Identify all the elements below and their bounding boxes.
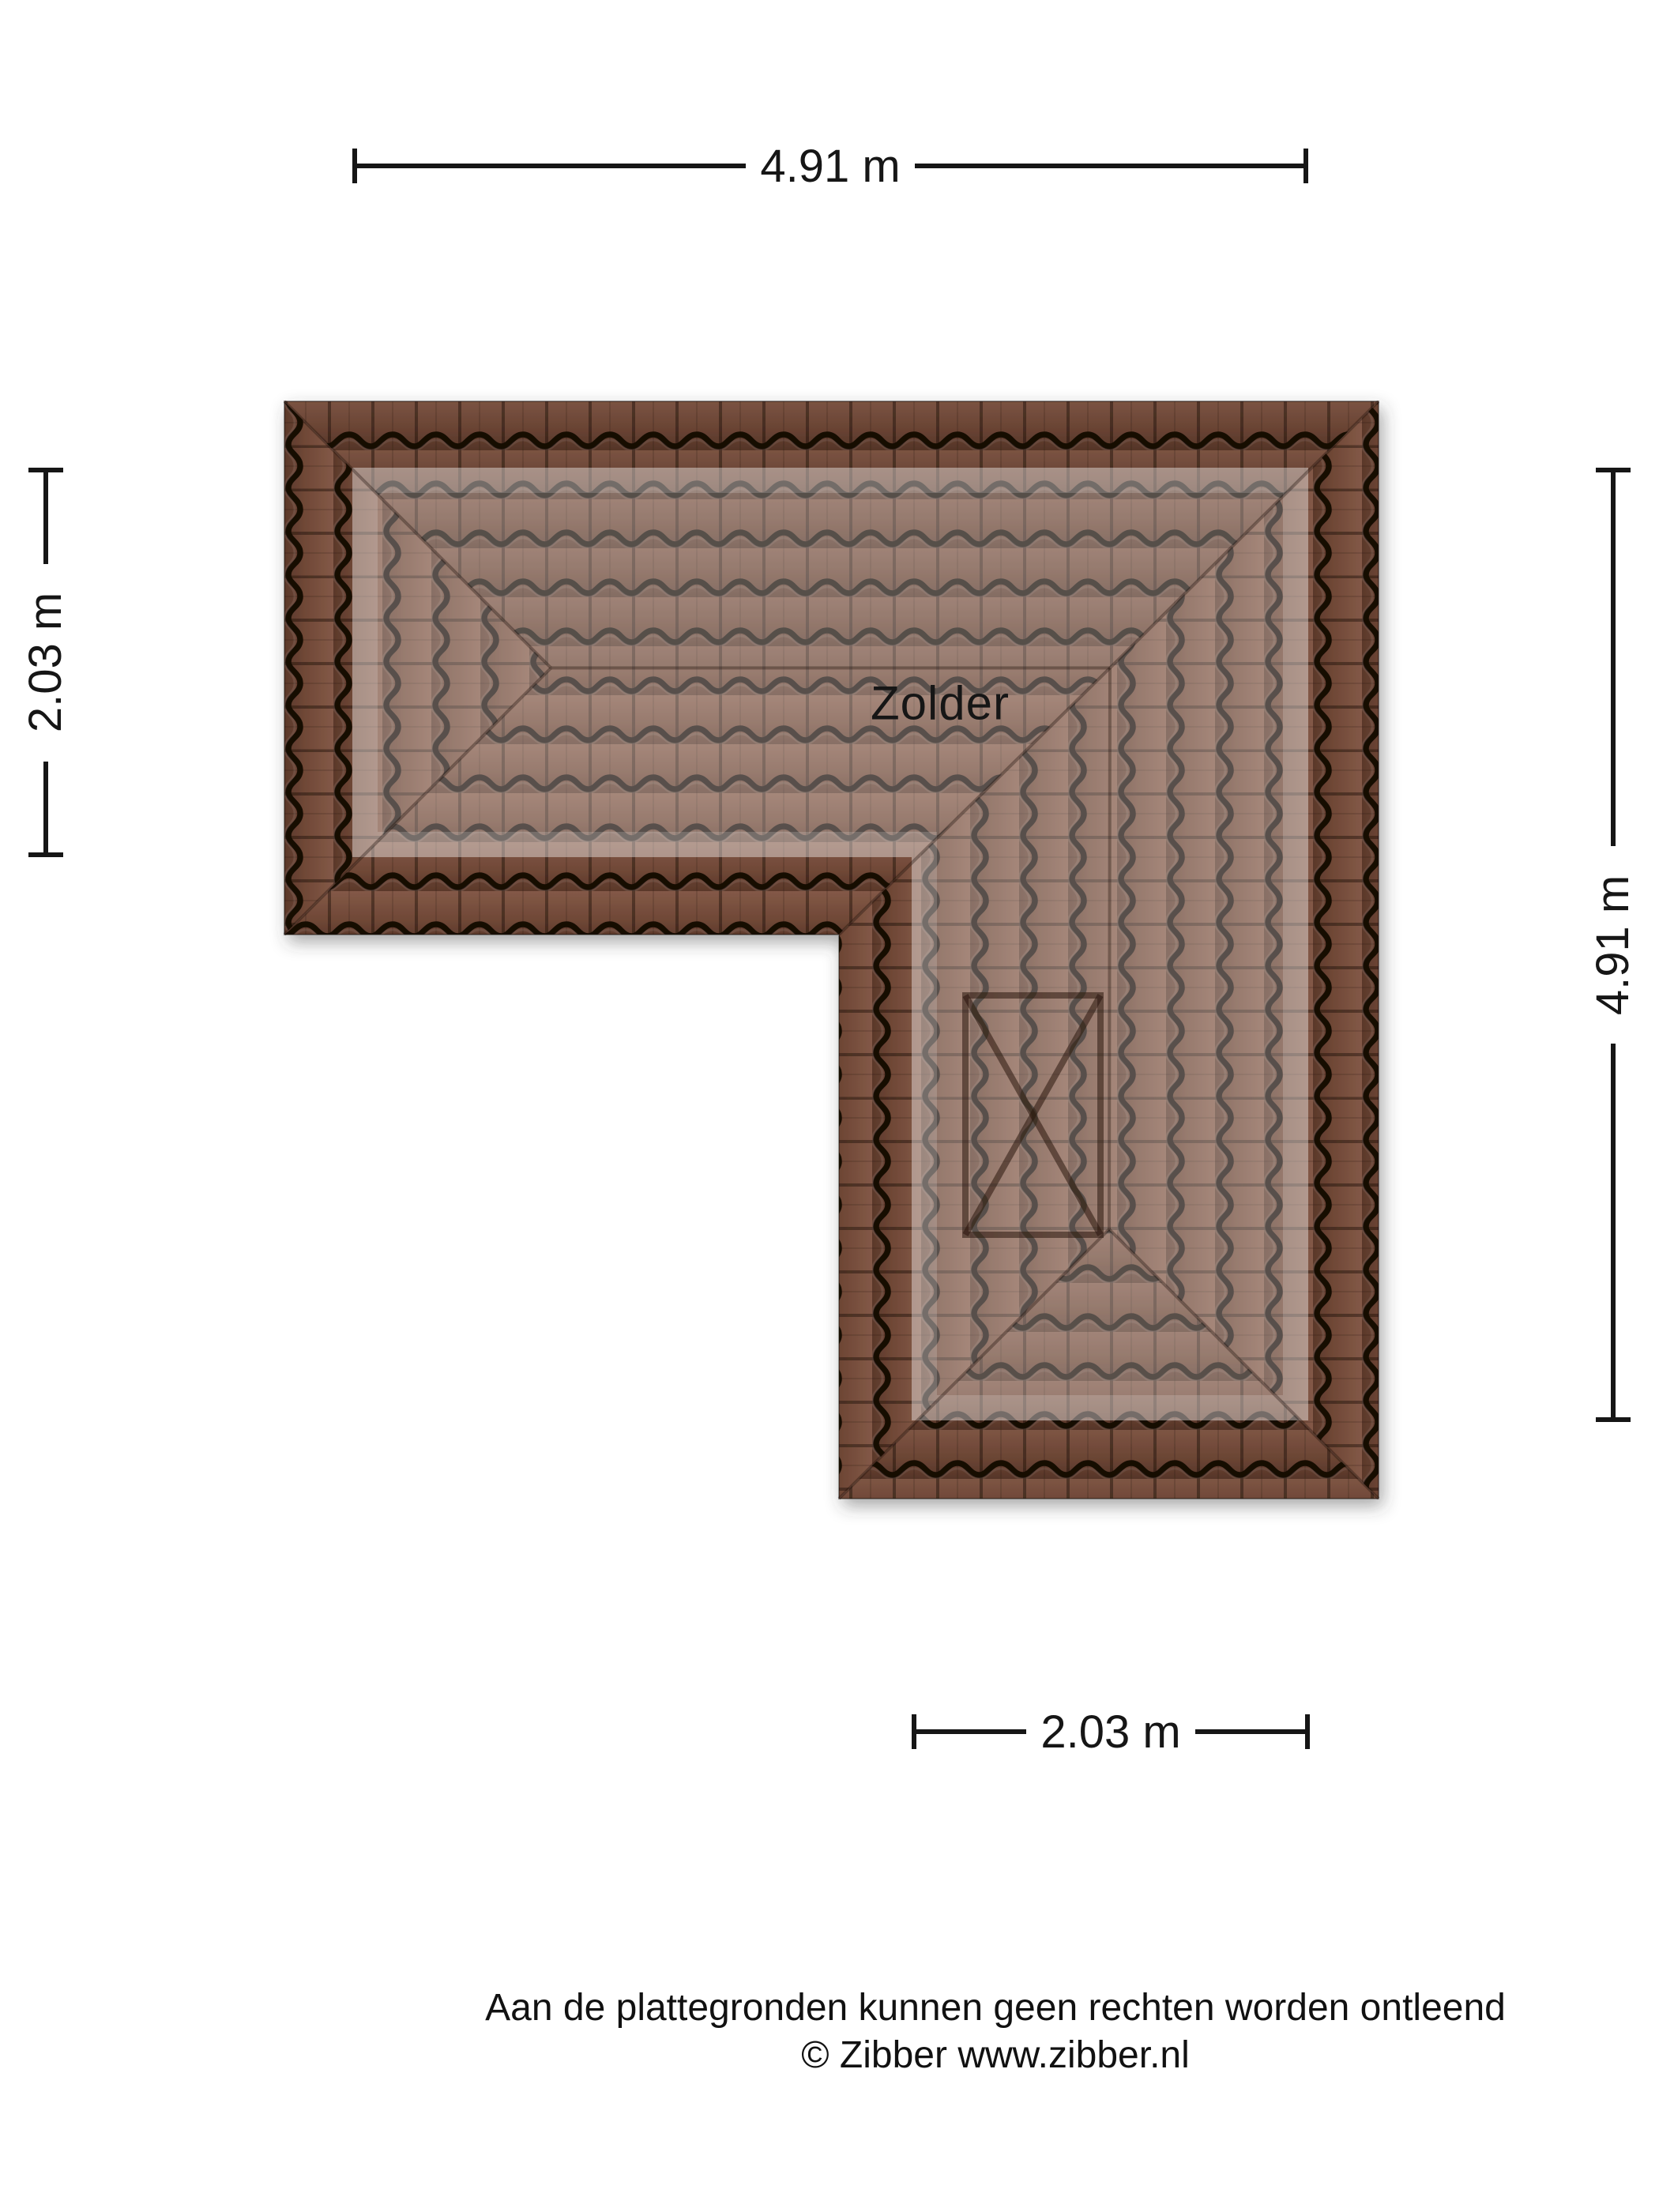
dimension-right: 4.91 m bbox=[1586, 468, 1641, 1422]
dimension-left: 2.03 m bbox=[18, 468, 73, 857]
roof-plan bbox=[284, 401, 1379, 1499]
dimension-top: 4.91 m bbox=[352, 138, 1308, 194]
dimension-label-bottom: 2.03 m bbox=[1026, 1706, 1194, 1759]
dimension-line bbox=[43, 468, 48, 564]
dimension-line bbox=[915, 164, 1308, 168]
dimension-label-left: 2.03 m bbox=[0, 564, 116, 762]
dimension-line bbox=[1195, 1729, 1310, 1734]
room-label: Zolder bbox=[871, 676, 1010, 731]
ridge-line bbox=[1109, 668, 1110, 1230]
disclaimer-line1: Aan de plattegronden kunnen geen rechten… bbox=[485, 1984, 1506, 2032]
dimension-line bbox=[43, 762, 48, 858]
dimension-line bbox=[1611, 468, 1616, 846]
dimension-label-top: 4.91 m bbox=[746, 140, 914, 193]
floorplan-page: 4.91 m 2.03 m 4.91 m 2.03 m bbox=[0, 0, 1659, 2212]
dimension-bottom: 2.03 m bbox=[912, 1704, 1310, 1759]
dimension-label-right: 4.91 m bbox=[1543, 846, 1659, 1044]
dimension-line bbox=[912, 1729, 1026, 1734]
roof-body bbox=[284, 401, 1379, 1499]
disclaimer: Aan de plattegronden kunnen geen rechten… bbox=[485, 1984, 1506, 2079]
roof-plan-svg bbox=[284, 401, 1379, 1499]
disclaimer-line2: © Zibber www.zibber.nl bbox=[485, 2032, 1506, 2079]
dimension-line bbox=[1611, 1044, 1616, 1422]
dimension-line bbox=[352, 164, 746, 168]
